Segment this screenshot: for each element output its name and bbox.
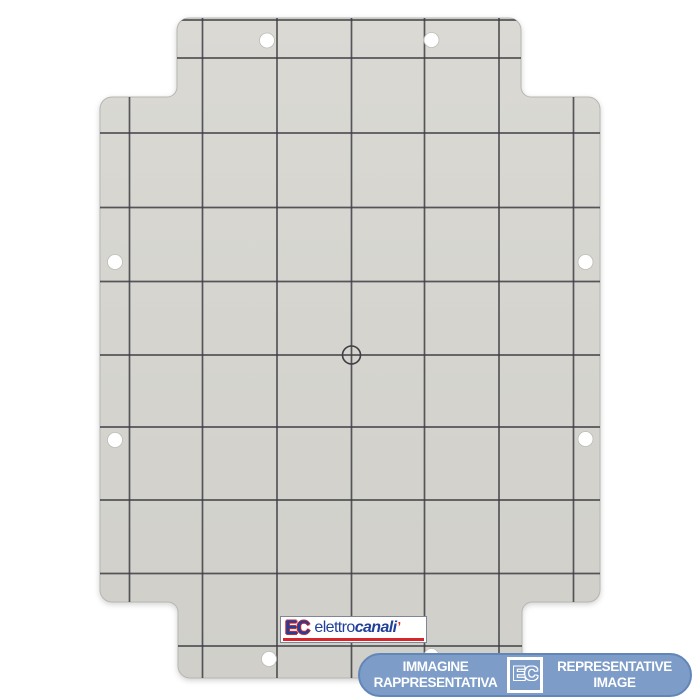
brand-accent-mark: ’ xyxy=(397,619,400,634)
brand-underline xyxy=(283,638,424,641)
watermark-english-text: REPRESENTATIVE IMAGE xyxy=(551,659,678,692)
product-photo-stage: EC elettrocanali’ IMMAGINE RAPPRESENTATI… xyxy=(0,0,700,700)
watermark-it-line1: IMMAGINE xyxy=(372,659,499,675)
mounting-hole xyxy=(424,33,439,48)
watermark-en-line1: REPRESENTATIVE xyxy=(551,659,678,675)
mounting-hole xyxy=(578,255,593,270)
plate-svg xyxy=(0,0,700,700)
watermark-en-line2: IMAGE xyxy=(551,675,678,691)
brand-name: elettrocanali’ xyxy=(314,620,400,636)
mounting-hole xyxy=(260,33,275,48)
mounting-hole xyxy=(108,255,123,270)
brand-name-regular: elettro xyxy=(314,619,354,636)
brand-label: EC elettrocanali’ xyxy=(280,616,427,643)
watermark-it-line2: RAPPRESENTATIVA xyxy=(372,675,499,691)
mounting-plate xyxy=(100,18,600,678)
mounting-hole xyxy=(108,433,123,448)
mounting-hole xyxy=(578,432,593,447)
watermark-italian-text: IMMAGINE RAPPRESENTATIVA xyxy=(372,659,499,692)
ec-logo-icon: EC xyxy=(507,657,543,693)
brand-name-bold: canali xyxy=(355,619,397,636)
brand-ec-monogram: EC xyxy=(285,619,309,638)
representative-image-watermark: IMMAGINE RAPPRESENTATIVA EC REPRESENTATI… xyxy=(358,653,692,697)
mounting-hole xyxy=(262,652,277,667)
